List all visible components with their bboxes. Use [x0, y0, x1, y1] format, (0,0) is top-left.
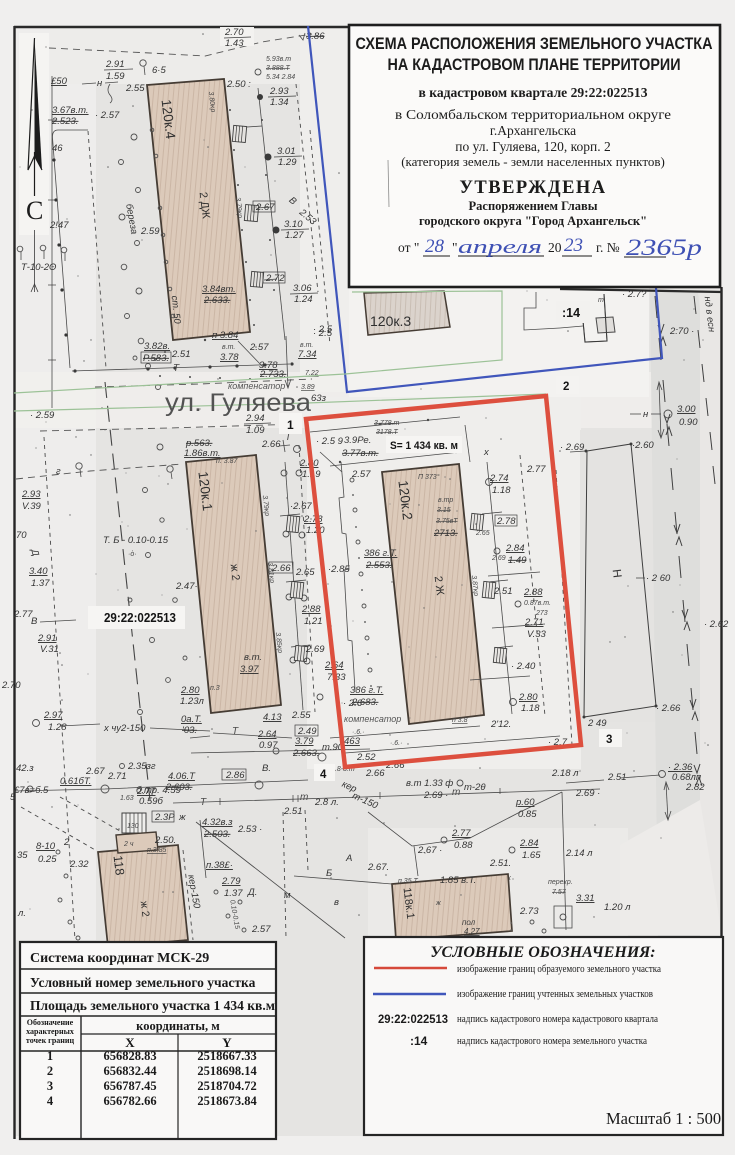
- svg-text:Т: Т: [232, 726, 239, 737]
- svg-text:Т-10-2Θ: Т-10-2Θ: [21, 262, 57, 273]
- svg-text:X: X: [125, 1035, 135, 1050]
- svg-text:1.59: 1.59: [106, 71, 125, 82]
- svg-text:УТВЕРЖДЕНА: УТВЕРЖДЕНА: [459, 178, 606, 198]
- svg-text:р.60: р.60: [515, 797, 535, 808]
- svg-text:В.: В.: [262, 763, 271, 774]
- svg-text:2.51: 2.51: [493, 586, 513, 597]
- svg-text:2.80: 2.80: [518, 692, 538, 703]
- svg-text:28: 28: [425, 236, 445, 257]
- svg-text:2.3Р: 2.3Р: [154, 812, 175, 823]
- svg-text:35: 35: [17, 850, 28, 861]
- svg-text:(категория земель - земли насе: (категория земель - земли населенных пун…: [401, 154, 665, 169]
- svg-text:3178.Т: 3178.Т: [376, 429, 399, 436]
- svg-text:V.39: V.39: [22, 501, 42, 512]
- svg-text:п 3.84: п 3.84: [212, 330, 238, 341]
- svg-text:2!47: 2!47: [49, 220, 69, 231]
- svg-text:· 2 60: · 2 60: [646, 573, 671, 584]
- svg-text:3: 3: [606, 734, 612, 746]
- svg-text:в кадастровом квартале 29:22:0: в кадастровом квартале 29:22:022513: [419, 85, 648, 100]
- svg-text:· 2.7?: · 2.7?: [622, 289, 647, 300]
- svg-text:2.66: 2.66: [271, 563, 291, 574]
- svg-text:S= 1 434 кв. м: S= 1 434 кв. м: [390, 440, 458, 452]
- svg-text:42.з: 42.з: [16, 763, 34, 774]
- svg-text:2.683.: 2.683.: [351, 697, 378, 708]
- svg-text:Масштаб 1 : 500: Масштаб 1 : 500: [606, 1109, 721, 1128]
- svg-text:": ": [452, 240, 458, 255]
- svg-text:·2.60: ·2.60: [632, 440, 654, 451]
- svg-text:в.т.: в.т.: [300, 342, 313, 349]
- svg-text:V.31: V.31: [40, 644, 59, 655]
- svg-text:1.49: 1.49: [508, 555, 527, 566]
- svg-text:Система координат МСК-29: Система координат МСК-29: [30, 951, 209, 966]
- svg-text:'03.: '03.: [182, 725, 197, 736]
- svg-text:1.24: 1.24: [294, 294, 313, 305]
- svg-text:0.25: 0.25: [38, 854, 57, 865]
- svg-text:3.67в.т.: 3.67в.т.: [52, 105, 89, 116]
- svg-text:V.33: V.33: [527, 629, 547, 640]
- svg-text:2.32: 2.32: [69, 859, 89, 870]
- svg-text:2.57: 2.57: [249, 342, 269, 353]
- svg-text:5.93в.т: 5.93в.т: [266, 56, 291, 63]
- svg-text:£7в=б.5: £7в=б.5: [13, 785, 49, 796]
- svg-text:2.8 л.: 2.8 л.: [314, 797, 339, 808]
- svg-text:2.52: 2.52: [356, 752, 376, 763]
- svg-text:п.3: п.3: [210, 685, 220, 692]
- svg-text:п.35.Т: п.35.Т: [398, 878, 419, 885]
- svg-text:2.78: 2.78: [496, 516, 516, 527]
- svg-text:1.09: 1.09: [246, 425, 265, 436]
- svg-text:1.20 л: 1.20 л: [604, 902, 631, 913]
- svg-text:1.29: 1.29: [278, 157, 297, 168]
- svg-text:2.50.: 2.50.: [154, 835, 176, 846]
- svg-text:273: 273: [535, 610, 548, 617]
- svg-text:2.91: 2.91: [37, 633, 57, 644]
- svg-text:в.т.: в.т.: [244, 652, 262, 663]
- svg-text:СХЕМА РАСПОЛОЖЕНИЯ ЗЕМЕЛЬНОГО: СХЕМА РАСПОЛОЖЕНИЯ ЗЕМЕЛЬНОГО УЧАСТКА: [356, 35, 713, 53]
- svg-text:н: н: [643, 409, 649, 420]
- svg-text:2.53 ·: 2.53 ·: [237, 824, 262, 835]
- svg-text:2.97: 2.97: [43, 710, 63, 721]
- svg-text:2.65: 2.65: [475, 530, 490, 537]
- svg-text:2: 2: [563, 381, 569, 393]
- svg-text:г. №: г. №: [596, 240, 620, 255]
- svg-text:1.34: 1.34: [270, 97, 289, 108]
- svg-text:Y: Y: [222, 1035, 232, 1050]
- svg-text:городского округа "Город Архан: городского округа "Город Архангельск": [419, 214, 647, 228]
- svg-text:463: 463: [344, 736, 361, 747]
- svg-text:2.65: 2.65: [295, 567, 315, 578]
- svg-text:0.88: 0.88: [454, 840, 473, 851]
- svg-text:2.93: 2.93: [21, 489, 41, 500]
- svg-text:координаты, м: координаты, м: [136, 1019, 220, 1033]
- svg-text:3.31: 3.31: [576, 893, 595, 904]
- svg-text:2.18 л: 2.18 л: [551, 768, 579, 779]
- svg-text:п.38£·: п.38£·: [206, 860, 233, 871]
- svg-text:· 2.5: · 2.5: [313, 328, 333, 339]
- svg-text:3.9Ре.: 3.9Ре.: [344, 435, 371, 446]
- svg-text:П 373°: П 373°: [418, 473, 440, 481]
- svg-text:·2.67: ·2.67: [290, 501, 312, 512]
- svg-text:2.77: 2.77: [526, 464, 546, 475]
- svg-text:2.14 л: 2.14 л: [565, 848, 593, 859]
- svg-text:апреля: апреля: [458, 237, 542, 258]
- svg-text:изображение границ учтенных зе: изображение границ учтенных земельных уч…: [457, 989, 653, 1000]
- svg-text:2518667.33: 2518667.33: [197, 1049, 256, 1063]
- svg-text:т: т: [300, 792, 308, 803]
- svg-text:29:22:022513: 29:22:022513: [378, 1012, 448, 1026]
- svg-text:от ": от ": [398, 240, 419, 255]
- svg-text:7.34: 7.34: [298, 349, 317, 360]
- svg-text:4.06.Т: 4.06.Т: [168, 771, 196, 782]
- svg-text:1.28: 1.28: [48, 722, 67, 733]
- svg-text:23: 23: [564, 235, 583, 256]
- svg-text:3.40: 3.40: [29, 566, 48, 577]
- svg-text:2.88: 2.88: [523, 587, 543, 598]
- svg-text:Условный номер земельного учас: Условный номер земельного участка: [30, 975, 256, 990]
- svg-text:386 г.Т.: 386 г.Т.: [364, 548, 397, 559]
- svg-text:2.51: 2.51: [283, 806, 303, 817]
- svg-text:2.77: 2.77: [451, 828, 471, 839]
- svg-text:Площадь земельного участка 1 4: Площадь земельного участка 1 434 кв.м: [30, 998, 275, 1013]
- svg-text:· 2.66: · 2.66: [656, 703, 681, 714]
- svg-text:2.50 :: 2.50 :: [226, 79, 251, 90]
- svg-text:3.00: 3.00: [677, 404, 696, 415]
- svg-text:2518704.72: 2518704.72: [197, 1079, 256, 1093]
- svg-text:2.93: 2.93: [269, 86, 289, 97]
- svg-text:в Соломбальском территориально: в Соломбальском территориальном округе: [395, 107, 671, 122]
- svg-text:656832.44: 656832.44: [103, 1064, 157, 1078]
- svg-text:3.84вт.: 3.84вт.: [202, 284, 236, 295]
- svg-text:2.71: 2.71: [524, 617, 544, 628]
- svg-text:2.523.: 2.523.: [51, 116, 78, 127]
- svg-text:п.3.85: п.3.85: [147, 847, 167, 854]
- svg-text:3.97: 3.97: [240, 664, 259, 675]
- svg-text:0.85: 0.85: [518, 809, 537, 820]
- svg-text:т-2θ: т-2θ: [464, 782, 486, 793]
- svg-text:2.66: 2.66: [261, 439, 281, 450]
- svg-text:2'12.: 2'12.: [490, 719, 511, 730]
- svg-text:2.80: 2.80: [180, 685, 200, 696]
- svg-text:ул. Гуляева: ул. Гуляева: [165, 389, 311, 417]
- svg-text:Т. Б - 0.10-0.15: Т. Б - 0.10-0.15: [103, 535, 169, 546]
- svg-text:пол: пол: [462, 918, 476, 927]
- svg-text:2.35зг: 2.35зг: [127, 761, 156, 772]
- svg-text:2365р: 2365р: [626, 235, 702, 260]
- svg-text:· 2.59: · 2.59: [30, 410, 55, 421]
- svg-text:1.23л: 1.23л: [180, 696, 204, 707]
- svg-text:В: В: [31, 616, 38, 627]
- svg-text:Распоряжением Главы: Распоряжением Главы: [469, 199, 598, 213]
- svg-text:2.71: 2.71: [107, 771, 127, 782]
- svg-text:2.55: 2.55: [291, 710, 311, 721]
- svg-text:2.66: 2.66: [365, 768, 385, 779]
- svg-text:2518698.14: 2518698.14: [197, 1064, 257, 1078]
- svg-text:4: 4: [47, 1094, 54, 1108]
- svg-text:2.57: 2.57: [251, 924, 271, 935]
- svg-text:надпись кадастрового номера ка: надпись кадастрового номера кадастрового…: [457, 1014, 658, 1025]
- svg-text:656787.45: 656787.45: [103, 1079, 156, 1093]
- svg-text:3.78: 3.78: [220, 352, 239, 363]
- svg-text:2.47·: 2.47·: [175, 581, 198, 592]
- svg-text:2.67: 2.67: [255, 202, 275, 213]
- svg-text:2 ч: 2 ч: [123, 841, 134, 848]
- svg-text:2.86: 2.86: [225, 770, 245, 781]
- svg-text:2.88: 2.88: [301, 604, 321, 615]
- svg-text:2713.: 2713.: [433, 528, 458, 539]
- svg-text:1: 1: [47, 1049, 53, 1063]
- svg-text:1.85 в.Т.: 1.85 в.Т.: [440, 875, 476, 886]
- svg-text:1.27: 1.27: [285, 230, 304, 241]
- svg-text:С: С: [26, 196, 43, 225]
- svg-text:компенсатор: компенсатор: [344, 714, 401, 724]
- svg-text:2: 2: [47, 1064, 53, 1078]
- svg-text:надпись кадастрового номера зе: надпись кадастрового номера земельного у…: [457, 1036, 648, 1047]
- svg-text:2 49: 2 49: [587, 718, 607, 729]
- svg-text:0.87в.т.: 0.87в.т.: [524, 600, 551, 607]
- svg-text:т: т: [452, 787, 460, 798]
- svg-text:3: 3: [47, 1079, 53, 1093]
- svg-text:Т: Т: [200, 797, 207, 808]
- svg-text:3.79: 3.79: [295, 736, 314, 747]
- svg-text:в.тр: в.тр: [438, 497, 453, 504]
- svg-text:·.6.·: ·.6.·: [390, 740, 402, 747]
- svg-text:0.97: 0.97: [259, 740, 278, 751]
- svg-text:в.т.: в.т.: [222, 344, 235, 351]
- svg-text:2.51: 2.51: [171, 349, 191, 360]
- svg-text:4: 4: [320, 769, 327, 781]
- svg-text:1.18: 1.18: [521, 703, 540, 714]
- svg-text:3.01: 3.01: [277, 146, 296, 157]
- svg-text:0.59б: 0.59б: [139, 796, 163, 807]
- svg-text:НА КАДАСТРОВОМ ПЛАНЕ ТЕРРИТОРИ: НА КАДАСТРОВОМ ПЛАНЕ ТЕРРИТОРИИ: [388, 56, 681, 74]
- svg-text:46: 46: [52, 143, 63, 154]
- svg-text:29:22:022513: 29:22:022513: [104, 610, 176, 625]
- svg-text:2.73: 2.73: [519, 906, 539, 917]
- svg-text:изображение границ образуемого: изображение границ образуемого земельног…: [457, 964, 661, 975]
- svg-text:7.57: 7.57: [552, 889, 567, 896]
- svg-text:·.6.·: ·.6.·: [352, 729, 364, 736]
- svg-text:2.55: 2.55: [125, 83, 145, 94]
- svg-text:3.77в.т.: 3.77в.т.: [342, 448, 379, 459]
- svg-text:1.43: 1.43: [225, 38, 244, 49]
- svg-text:3.10: 3.10: [284, 219, 303, 230]
- svg-text:2.64: 2.64: [257, 729, 277, 740]
- svg-text:· 2.62: · 2.62: [704, 619, 729, 630]
- svg-text:3.82в.: 3.82в.: [144, 341, 170, 352]
- svg-text:2.78: 2.78: [303, 514, 323, 525]
- svg-text:386 г.Т.: 386 г.Т.: [350, 685, 383, 696]
- svg-text:2.70: 2.70: [1, 680, 21, 691]
- svg-text::14: :14: [410, 1034, 428, 1048]
- svg-text:перекр.: перекр.: [548, 879, 573, 886]
- svg-text:г.Архангельска: г.Архангельска: [490, 123, 576, 138]
- svg-text:2.69: 2.69: [491, 555, 506, 562]
- svg-text:3.06: 3.06: [293, 283, 312, 294]
- svg-text:2.70: 2.70: [224, 27, 244, 38]
- svg-text:2.72: 2.72: [265, 273, 285, 284]
- svg-text:2.553.: 2.553.: [365, 560, 392, 571]
- svg-text:2.91: 2.91: [105, 59, 125, 70]
- svg-text:2 Ж: 2 Ж: [432, 575, 446, 596]
- svg-text:2.67.: 2.67.: [367, 862, 389, 873]
- svg-text:2: 2: [63, 837, 70, 848]
- svg-text:2.74: 2.74: [489, 473, 509, 484]
- svg-text:в: в: [334, 897, 339, 908]
- svg-text:2.69: 2.69: [305, 644, 325, 655]
- svg-text:2518673.84: 2518673.84: [197, 1094, 257, 1108]
- svg-text:характерных: характерных: [26, 1027, 74, 1036]
- svg-text:4.32в.з: 4.32в.з: [202, 817, 233, 828]
- svg-text:· 2.57: · 2.57: [95, 110, 120, 121]
- svg-text:656828.83: 656828.83: [103, 1049, 156, 1063]
- svg-text:2.82: 2.82: [685, 782, 705, 793]
- svg-text:в.т 1.33 ф: в.т 1.33 ф: [406, 778, 453, 789]
- svg-text:х чу2-150: х чу2-150: [103, 723, 146, 734]
- svg-text:118: 118: [111, 855, 127, 877]
- svg-text:2.69 ·: 2.69 ·: [423, 790, 448, 801]
- svg-text:2.84: 2.84: [519, 838, 539, 849]
- svg-text::14: :14: [562, 306, 580, 320]
- svg-text:3.75вТ: 3.75вТ: [436, 518, 458, 525]
- svg-text:п. 3.87: п. 3.87: [216, 458, 238, 465]
- svg-text:5.34 2.84: 5.34 2.84: [266, 74, 295, 81]
- svg-text:8-10: 8-10: [36, 841, 56, 852]
- svg-text:точек границ: точек границ: [26, 1036, 75, 1045]
- svg-text:1.37: 1.37: [224, 888, 243, 899]
- svg-text:2.51.: 2.51.: [489, 858, 511, 869]
- svg-text:2:70 ·: 2:70 ·: [669, 326, 694, 337]
- svg-text:20: 20: [548, 240, 562, 255]
- svg-text:1.37: 1.37: [31, 578, 50, 589]
- svg-text:656782.66: 656782.66: [103, 1094, 156, 1108]
- svg-text:т: т: [598, 297, 604, 304]
- svg-text:2.57: 2.57: [351, 469, 371, 480]
- svg-text:1.20: 1.20: [306, 525, 325, 536]
- svg-text:£50: £50: [50, 76, 68, 87]
- svg-text:1.18: 1.18: [492, 485, 511, 496]
- svg-text:ж: ж: [178, 812, 186, 823]
- svg-text:2.59: 2.59: [140, 226, 160, 237]
- svg-text:1: 1: [287, 418, 294, 432]
- svg-text:0.90: 0.90: [679, 417, 698, 428]
- svg-text:Д.: Д.: [247, 887, 257, 898]
- svg-text:2.67 ·: 2.67 ·: [417, 845, 442, 856]
- svg-text:Т: Т: [173, 363, 180, 374]
- svg-text:130: 130: [127, 823, 139, 830]
- svg-text:0.61бТ.: 0.61бТ.: [60, 776, 91, 787]
- svg-text:1.65: 1.65: [522, 850, 541, 861]
- svg-text:п 3.8: п 3.8: [452, 717, 468, 724]
- svg-text:г: г: [56, 466, 61, 477]
- svg-text:Обозначение: Обозначение: [27, 1018, 74, 1027]
- svg-text:Н: Н: [610, 568, 625, 578]
- svg-text:Р.583.: Р.583.: [143, 353, 169, 364]
- svg-text:по ул. Гуляева, 120, корп. 2: по ул. Гуляева, 120, корп. 2: [455, 139, 610, 154]
- svg-text:0а.Т.: 0а.Т.: [181, 714, 202, 725]
- svg-text:ж 2: ж 2: [228, 563, 242, 581]
- svg-text:6·5: 6·5: [152, 65, 166, 76]
- svg-text:120к.3: 120к.3: [370, 313, 411, 329]
- svg-text:· 2.5 9: · 2.5 9: [316, 436, 344, 447]
- svg-text:· 2.40: · 2.40: [511, 661, 536, 672]
- svg-text:2.84: 2.84: [505, 543, 525, 554]
- svg-text:3.888.Т: 3.888.Т: [266, 65, 290, 72]
- svg-text:ж 2: ж 2: [138, 900, 152, 917]
- svg-text:л.: л.: [17, 908, 26, 919]
- svg-text:·ὸ·: ·ὸ·: [128, 550, 137, 558]
- svg-text:3.15: 3.15: [437, 507, 451, 514]
- svg-text:70: 70: [16, 530, 27, 541]
- svg-text:2.663.: 2.663.: [292, 748, 319, 759]
- svg-text:4.27: 4.27: [464, 927, 480, 936]
- svg-text:н: н: [97, 78, 103, 89]
- svg-text:4.13: 4.13: [263, 712, 282, 723]
- svg-text:1.63: 1.63: [120, 795, 134, 802]
- svg-text:2.79: 2.79: [221, 876, 241, 887]
- svg-text:1.21: 1.21: [304, 616, 323, 627]
- svg-text:А: А: [345, 853, 352, 864]
- svg-text:УСЛОВНЫЕ ОБОЗНАЧЕНИЯ:: УСЛОВНЫЕ ОБОЗНАЧЕНИЯ:: [430, 944, 655, 961]
- svg-text:2.633.: 2.633.: [203, 295, 230, 306]
